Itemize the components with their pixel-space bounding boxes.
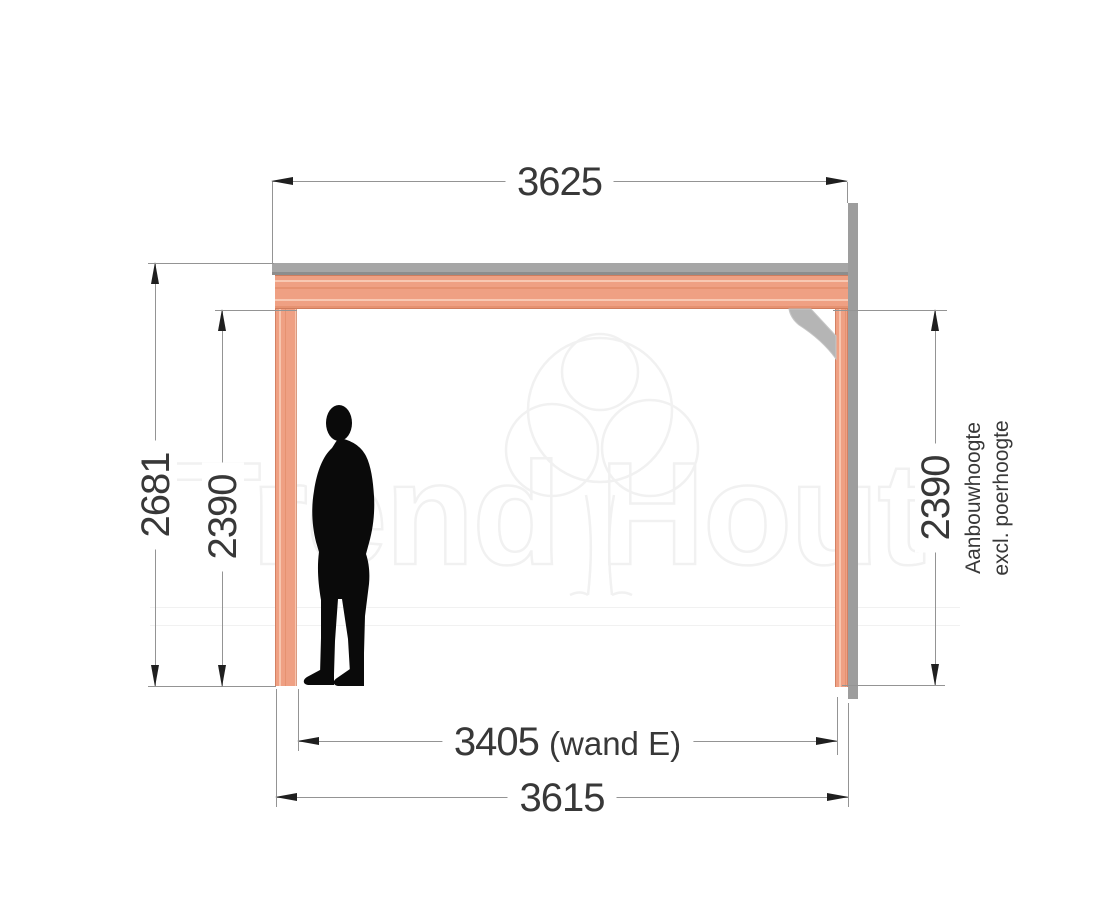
- dim-inner-width-note: (wand E): [549, 725, 681, 762]
- dim-inner-height-left-label: 2390: [202, 463, 244, 572]
- arrow-right-icon: [826, 177, 848, 185]
- arrow-up-icon: [151, 262, 159, 284]
- wall-height-note-line2: excl. poerhoogte: [988, 420, 1016, 575]
- arrow-left-icon: [297, 737, 319, 745]
- wall-height-note: Aanbouwhoogte excl. poerhoogte: [960, 420, 1016, 575]
- dim-top-width: 3625: [272, 181, 847, 182]
- arrow-down-icon: [218, 665, 226, 687]
- dim-bottom-width: 3615: [276, 797, 848, 798]
- diagonal-brace: [789, 309, 836, 359]
- arrow-right-icon: [816, 737, 838, 745]
- wall-height-note-line1: Aanbouwhoogte: [960, 420, 988, 575]
- arrow-left-icon: [275, 793, 297, 801]
- tick-line: [148, 263, 274, 264]
- dim-inner-width-label: 3405 (wand E): [442, 721, 693, 763]
- extension-line: [847, 182, 848, 203]
- tick-line: [215, 310, 297, 311]
- dim-inner-width: 3405 (wand E): [298, 741, 837, 742]
- dim-inner-height-right: 2390: [935, 310, 936, 685]
- arrow-down-icon: [151, 665, 159, 687]
- dim-outer-height: 2681: [155, 263, 156, 686]
- tick-line: [842, 685, 945, 686]
- dim-inner-height-left: 2390: [222, 310, 223, 686]
- arrow-down-icon: [931, 664, 939, 686]
- arrow-up-icon: [218, 309, 226, 331]
- dim-bottom-width-label: 3615: [508, 777, 617, 819]
- extension-line: [276, 689, 277, 807]
- dim-inner-width-value: 3405: [454, 720, 539, 764]
- tick-line: [833, 310, 947, 311]
- extension-line: [298, 689, 299, 751]
- extension-line: [848, 703, 849, 807]
- extension-line: [837, 697, 838, 755]
- dim-outer-height-label: 2681: [135, 441, 177, 550]
- drawing-canvas: Trend Hout 3625 2681 2390: [0, 0, 1096, 913]
- arrow-right-icon: [827, 793, 849, 801]
- person-silhouette: [304, 405, 374, 686]
- arrow-left-icon: [271, 177, 293, 185]
- extension-line: [272, 182, 273, 263]
- arrow-up-icon: [931, 309, 939, 331]
- tick-line: [148, 686, 276, 687]
- dim-top-width-label: 3625: [505, 161, 614, 203]
- dim-inner-height-right-label: 2390: [915, 444, 957, 553]
